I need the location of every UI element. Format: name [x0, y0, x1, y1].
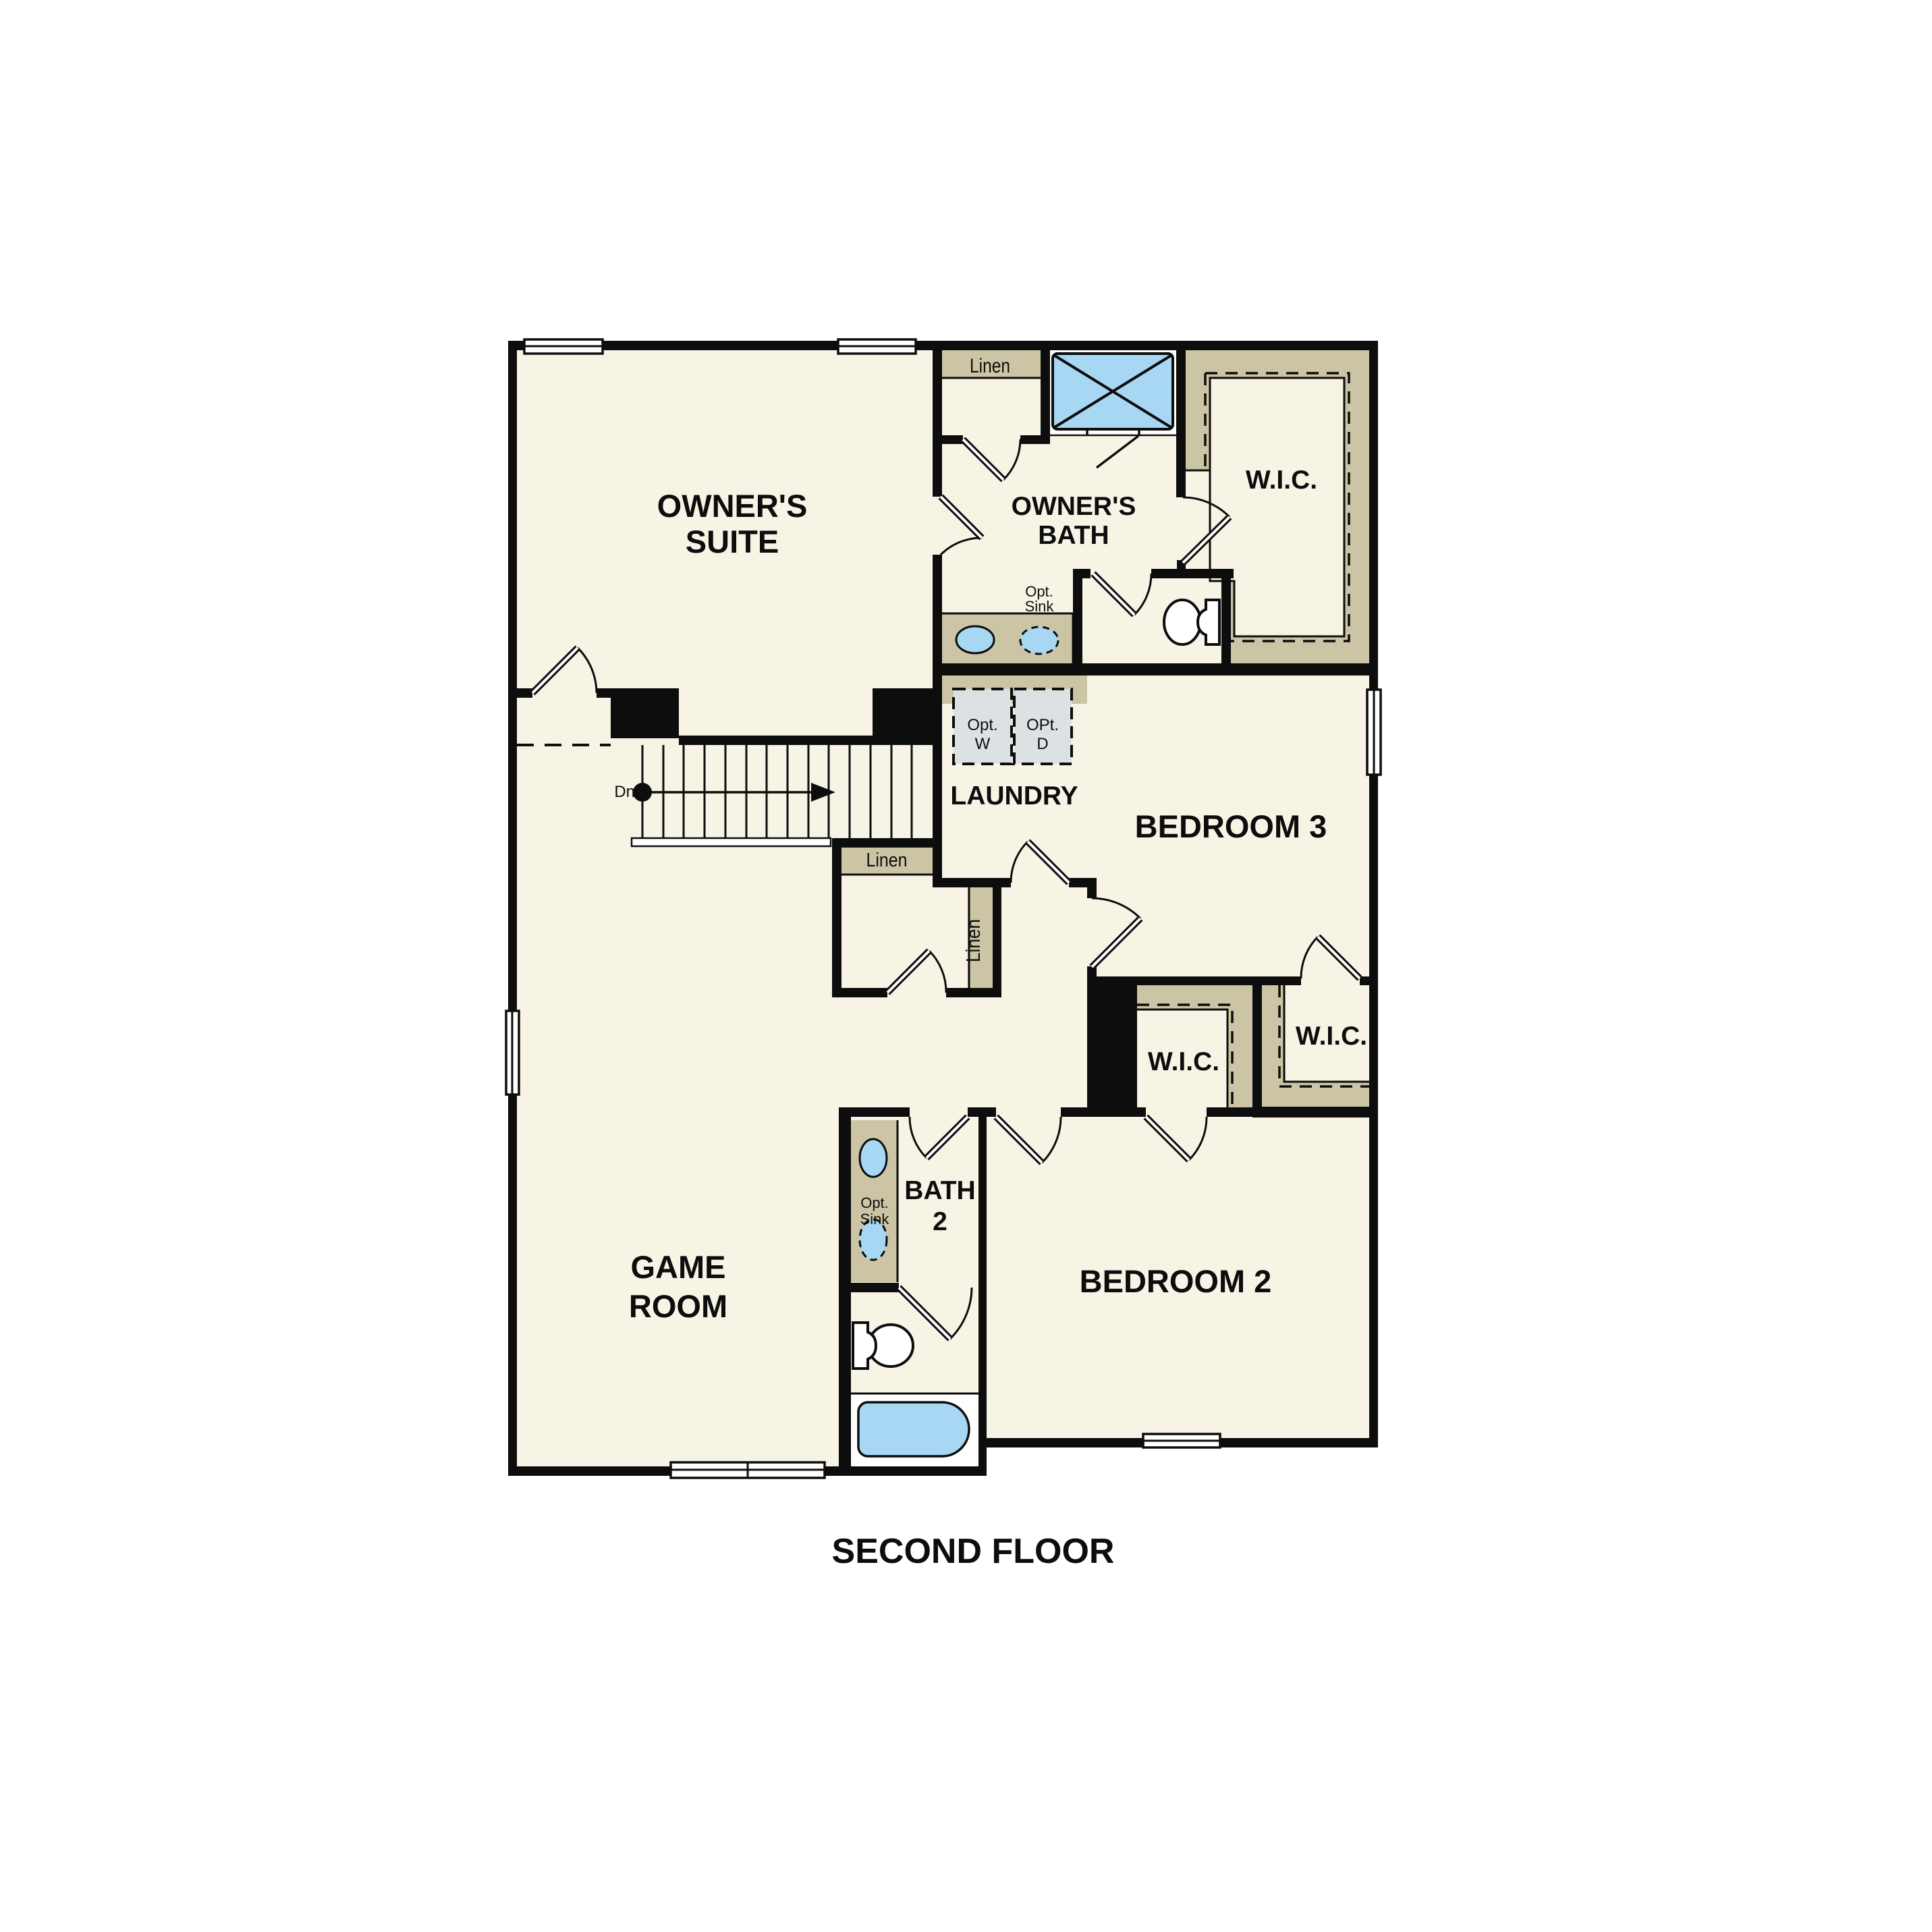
svg-text:Linen: Linen — [970, 355, 1010, 377]
svg-text:BATH: BATH — [904, 1176, 975, 1205]
svg-text:W: W — [975, 735, 991, 753]
svg-text:2: 2 — [933, 1207, 947, 1236]
svg-text:ROOM: ROOM — [629, 1288, 727, 1324]
svg-text:GAME: GAME — [631, 1249, 726, 1285]
svg-text:BATH: BATH — [1038, 521, 1109, 550]
svg-text:Sink: Sink — [1025, 598, 1055, 615]
svg-text:OWNER'S: OWNER'S — [657, 488, 808, 524]
svg-text:D: D — [1037, 735, 1048, 753]
svg-text:BEDROOM 2: BEDROOM 2 — [1080, 1263, 1272, 1299]
svg-text:Linen: Linen — [866, 850, 908, 871]
svg-text:OWNER'S: OWNER'S — [1012, 492, 1136, 521]
svg-text:Sink: Sink — [860, 1211, 890, 1227]
svg-text:LAUNDRY: LAUNDRY — [950, 781, 1078, 810]
svg-text:Dn: Dn — [614, 783, 635, 801]
svg-text:W.I.C.: W.I.C. — [1246, 466, 1317, 495]
svg-text:Opt.: Opt. — [967, 716, 997, 734]
svg-text:Opt.: Opt. — [860, 1194, 889, 1211]
svg-text:W.I.C.: W.I.C. — [1296, 1022, 1367, 1051]
svg-text:SECOND FLOOR: SECOND FLOOR — [832, 1532, 1115, 1571]
svg-text:SUITE: SUITE — [686, 524, 779, 559]
svg-text:OPt.: OPt. — [1026, 716, 1059, 734]
svg-text:BEDROOM 3: BEDROOM 3 — [1135, 808, 1327, 844]
svg-text:Linen: Linen — [963, 919, 985, 962]
svg-text:W.I.C.: W.I.C. — [1148, 1047, 1219, 1076]
